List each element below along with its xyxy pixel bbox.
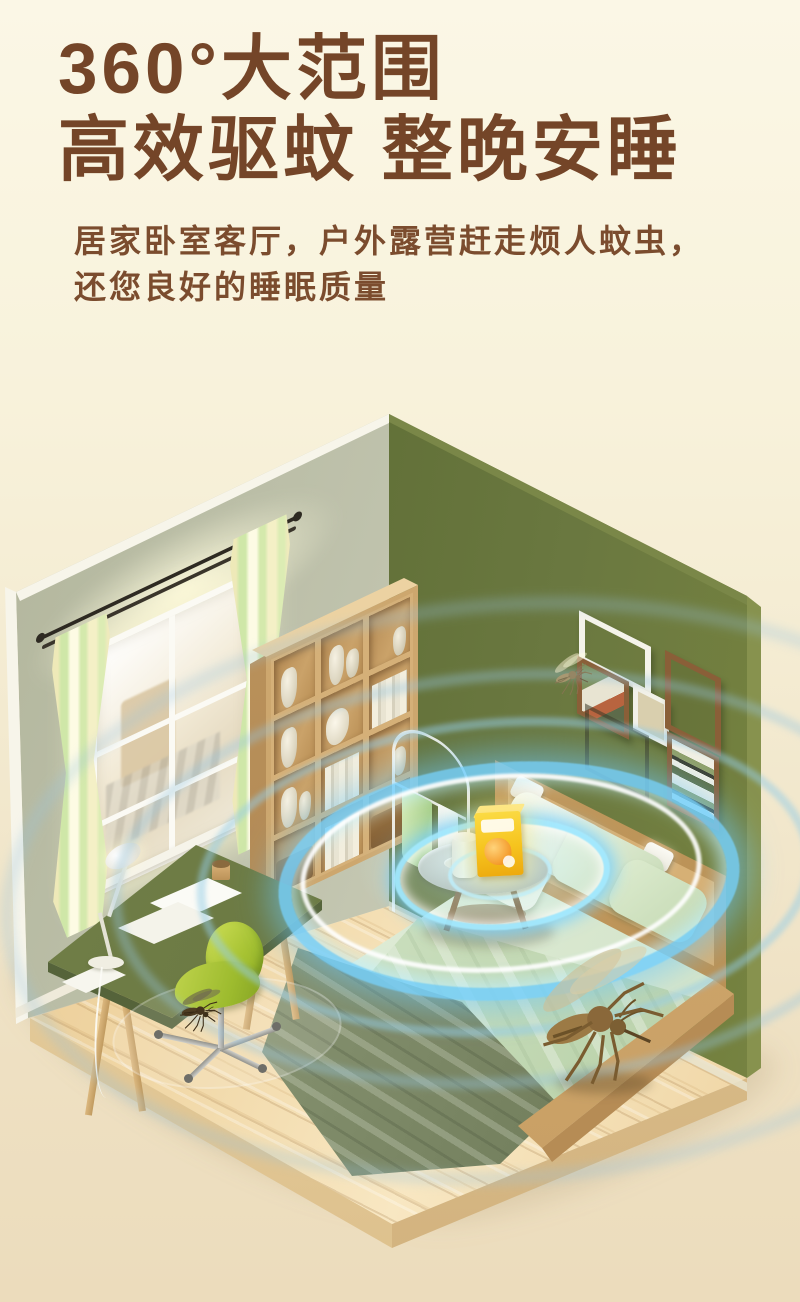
mosquito-icon-large xyxy=(516,938,694,1100)
header: 360°大范围 高效驱蚊 整晚安睡 居家卧室客厅，户外露营赶走烦人蚊虫， 还您良… xyxy=(0,0,800,310)
repellent-product-box xyxy=(474,811,523,877)
headline-line1: 360°大范围 xyxy=(58,0,800,111)
repellent-box-label xyxy=(481,818,515,833)
mosquito-icon-wall xyxy=(546,650,602,700)
subtitle-line2: 还您良好的睡眠质量 xyxy=(74,264,800,310)
repellent-box-badge xyxy=(503,855,516,868)
subtitle-line1: 居家卧室客厅，户外露营赶走烦人蚊虫， xyxy=(74,218,800,264)
headline-line2: 高效驱蚊 整晚安睡 xyxy=(58,111,800,192)
